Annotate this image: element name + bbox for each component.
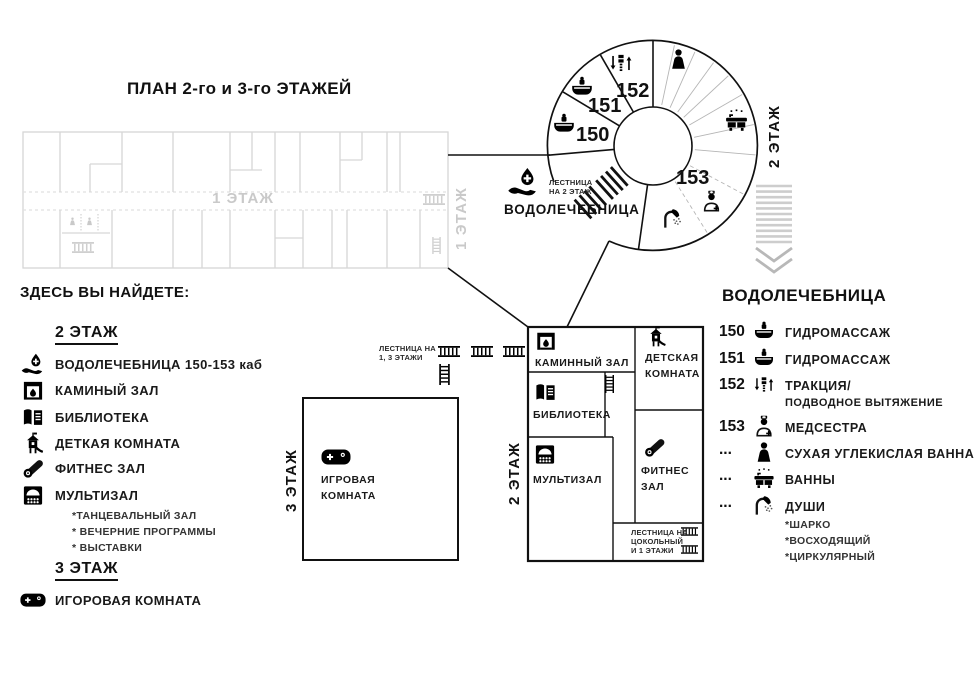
room-number: ... [719,441,753,459]
wc-person-icon [87,218,92,226]
legend-item-fireplace-hall: КАМИНЫЙ ЗАЛ [20,378,159,402]
stairs-note-line: НА 2 ЭТАЖ [549,187,592,196]
legend-item-label: МУЛЬТИЗАЛ [55,488,138,503]
stairs-note-line: И 1 ЭТАЖИ [631,546,688,555]
shower-note: *ВОСХОДЯЩИЙ [785,535,871,547]
page-title: ПЛАН 2-го и 3-го ЭТАЖЕЙ [127,79,352,99]
room-number: 150 [719,323,753,341]
gamepad-icon [20,589,46,612]
multihall-icon [536,445,554,463]
floor1-corridor-label: 1 ЭТАЖ [198,190,288,207]
legend-item-label: ФИТНЕС ЗАЛ [55,461,145,476]
tower-room-153: 153 [676,167,709,190]
multihall-note: * ВЕЧЕРНИЕ ПРОГРАММЫ [72,526,216,538]
fireplace-icon [20,379,46,402]
ladder-icon [432,237,441,254]
hydro-tub-icon [751,347,777,370]
legend-item-library: БИБЛИОТЕКА [20,405,149,429]
legend-item-multihall: МУЛЬТИЗАЛ [20,483,138,507]
floor3-heading: 3 ЭТАЖ [55,560,118,581]
bath-icon [726,109,747,130]
floor2-side-label: 2 ЭТАЖ [506,442,523,505]
tower-side-label: 2 ЭТАЖ [766,105,783,168]
room-number: ... [719,467,753,485]
fitness-mat-icon [645,443,661,457]
stairs-13-note: ЛЕСТНИЦА НА 1, 3 ЭТАЖИ [379,344,436,362]
stairs-note-line: ЛЕСТНИЦА НА [379,344,436,353]
shower-icon [665,209,681,227]
nurse-icon [751,415,777,438]
multihall-note: *ТАНЦЕВАЛЬНЫЙ ЗАЛ [72,510,196,522]
ladder-icon [605,375,614,393]
shower-icon [751,494,777,517]
legend-item-label: КАМИНЫЙ ЗАЛ [55,383,159,398]
legend-item-label: ВОДОЛЕЧЕБНИЦА 150-153 каб [55,357,262,372]
multihall-note: * ВЫСТАВКИ [72,542,142,554]
fitness-hall-label: ФИТНЕС ЗАЛ [641,463,689,495]
legend-item-label: БИБЛИОТЕКА [55,410,149,425]
bath-icon [751,467,777,490]
stairs-13-icons [438,346,525,385]
legend-item-game-room: ИГОРОВАЯ КОМНАТА [20,588,201,612]
room-number: 151 [719,350,753,368]
hydro-tub-icon [554,114,574,132]
fitness-line: ЗАЛ [641,479,689,495]
library-icon [20,406,46,429]
stairs-note-line: ЦОКОЛЬНЫЙ [631,537,688,546]
fitness-mat-icon [20,457,46,480]
legend-row-label: ГИДРОМАССАЖ [785,353,891,367]
stairs-basement-note: ЛЕСТНИЦА НА ЦОКОЛЬНЫЙ И 1 ЭТАЖИ [631,528,688,555]
legend-right-heading: ВОДОЛЕЧЕБНИЦА [722,286,886,306]
legend-row-label2: ПОДВОДНОЕ ВЫТЯЖЕНИЕ [785,397,943,409]
stairs-icon [438,346,460,357]
legend-item-kids-room: ДЕТКАЯ КОМНАТА [20,431,180,455]
ladder-icon [439,364,450,385]
tower-area-label: ВОДОЛЕЧЕБНИЦА [504,202,640,217]
kids-room-line: ДЕТСКАЯ [645,350,700,366]
water-hand-icon [508,168,536,195]
legend-row-label: ВАННЫ [785,473,835,487]
traction-icon [751,373,777,396]
stairs-note-line: 1, 3 ЭТАЖИ [379,353,436,362]
stairs-icon [471,346,493,357]
stairs-note-line: ЛЕСТНИЦА НА [631,528,688,537]
person-icon [751,441,777,464]
stairs-icon [503,346,525,357]
room-number: 153 [719,418,753,436]
shower-note: *ЦИРКУЛЯРНЫЙ [785,551,875,563]
room-number: ... [719,494,753,512]
legend-item-label: ИГОРОВАЯ КОМНАТА [55,593,201,608]
tower-room-150: 150 [576,124,609,147]
kids-room-line: КОМНАТА [645,366,700,382]
fireplace-icon [537,333,554,350]
legend-item-vodolechebnitsa: ВОДОЛЕЧЕБНИЦА 150-153 каб [20,352,262,376]
game-room-label: ИГРОВАЯ КОМНАТА [321,472,376,504]
library-label: БИБЛИОТЕКА [533,407,611,423]
multihall-icon [20,484,46,507]
legend-row-label: ДУШИ [785,500,825,514]
nurse-icon [705,191,719,211]
legend-item-fitness: ФИТНЕС ЗАЛ [20,456,145,480]
floor2-heading: 2 ЭТАЖ [55,324,118,345]
stairs-note-line: ЛЕСТНИЦА [549,178,592,187]
water-hand-icon [20,353,46,376]
tower-room-152: 152 [616,80,649,103]
legend-left: ЗДЕСЬ ВЫ НАЙДЕТЕ: 2 ЭТАЖ ВОДОЛЕЧЕБНИЦА 1… [20,284,300,624]
stairs-icon [423,194,445,205]
legend-row-label: МЕДСЕСТРА [785,421,867,435]
multihall-label: МУЛЬТИЗАЛ [533,472,602,488]
hydro-tub-icon [751,320,777,343]
stairs-to-floor2-note: ЛЕСТНИЦА НА 2 ЭТАЖ [549,178,592,196]
floor1-side-label: 1 ЭТАЖ [453,187,470,250]
shower-note: *ШАРКО [785,519,831,531]
legend-row-label: ТРАКЦИЯ/ [785,379,851,393]
gamepad-icon [322,450,351,465]
traction-icon [611,55,632,71]
kids-room-label: ДЕТСКАЯ КОМНАТА [645,350,700,382]
kids-tower-icon [650,327,665,347]
down-arrow [756,186,792,272]
library-icon [536,384,554,400]
legend-row-label: СУХАЯ УГЛЕКИСЛАЯ ВАННА [785,447,974,461]
hydro-tub-icon [572,77,592,95]
stairs-icon [72,242,94,253]
fitness-line: ФИТНЕС [641,463,689,479]
game-room-line: ИГРОВАЯ [321,472,376,488]
legend-row-label: ГИДРОМАССАЖ [785,326,891,340]
legend-right: ВОДОЛЕЧЕБНИЦА 150 ГИДРОМАССАЖ 151 ГИДРОМ… [705,286,977,576]
fireplace-hall-label: КАМИННЫЙ ЗАЛ [535,355,629,371]
game-room-line: КОМНАТА [321,488,376,504]
legend-item-label: ДЕТКАЯ КОМНАТА [55,436,180,451]
floor-plan-infographic: ПЛАН 2-го и 3-го ЭТАЖЕЙ 1 ЭТАЖ 1 ЭТАЖ 15… [0,0,980,691]
person-icon [672,49,685,68]
kids-tower-icon [20,432,46,455]
room-number: 152 [719,376,753,394]
legend-left-heading: ЗДЕСЬ ВЫ НАЙДЕТЕ: [20,284,300,301]
wc-person-icon [70,218,75,226]
